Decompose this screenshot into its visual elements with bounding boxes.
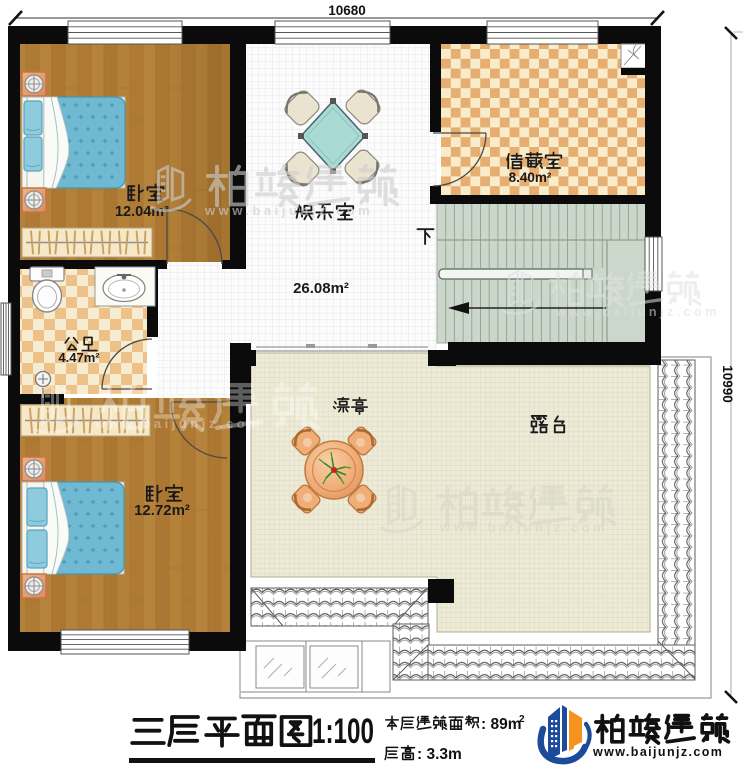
svg-text:10990: 10990 bbox=[720, 365, 735, 403]
svg-text:10680: 10680 bbox=[328, 3, 366, 18]
svg-text:: 3.3m: : 3.3m bbox=[417, 746, 462, 763]
svg-text:: 89m: : 89m bbox=[481, 716, 522, 733]
svg-text:www.baijunjz.com: www.baijunjz.com bbox=[94, 416, 263, 431]
svg-text:12.04m²: 12.04m² bbox=[115, 204, 169, 220]
svg-text:8.40m²: 8.40m² bbox=[509, 170, 552, 185]
svg-text:www.baijunjz.com: www.baijunjz.com bbox=[439, 520, 608, 535]
svg-text:1:100: 1:100 bbox=[312, 712, 374, 751]
svg-text:4.47m²: 4.47m² bbox=[58, 350, 100, 365]
svg-text:www.baijunjz.com: www.baijunjz.com bbox=[592, 745, 723, 759]
svg-text:www.baijunjz.com: www.baijunjz.com bbox=[204, 203, 373, 218]
svg-text:www.baijunjz.com: www.baijunjz.com bbox=[555, 305, 720, 319]
svg-text:26.08m²: 26.08m² bbox=[293, 280, 349, 297]
svg-text:12.72m²: 12.72m² bbox=[134, 502, 190, 519]
svg-text:2: 2 bbox=[519, 714, 525, 725]
